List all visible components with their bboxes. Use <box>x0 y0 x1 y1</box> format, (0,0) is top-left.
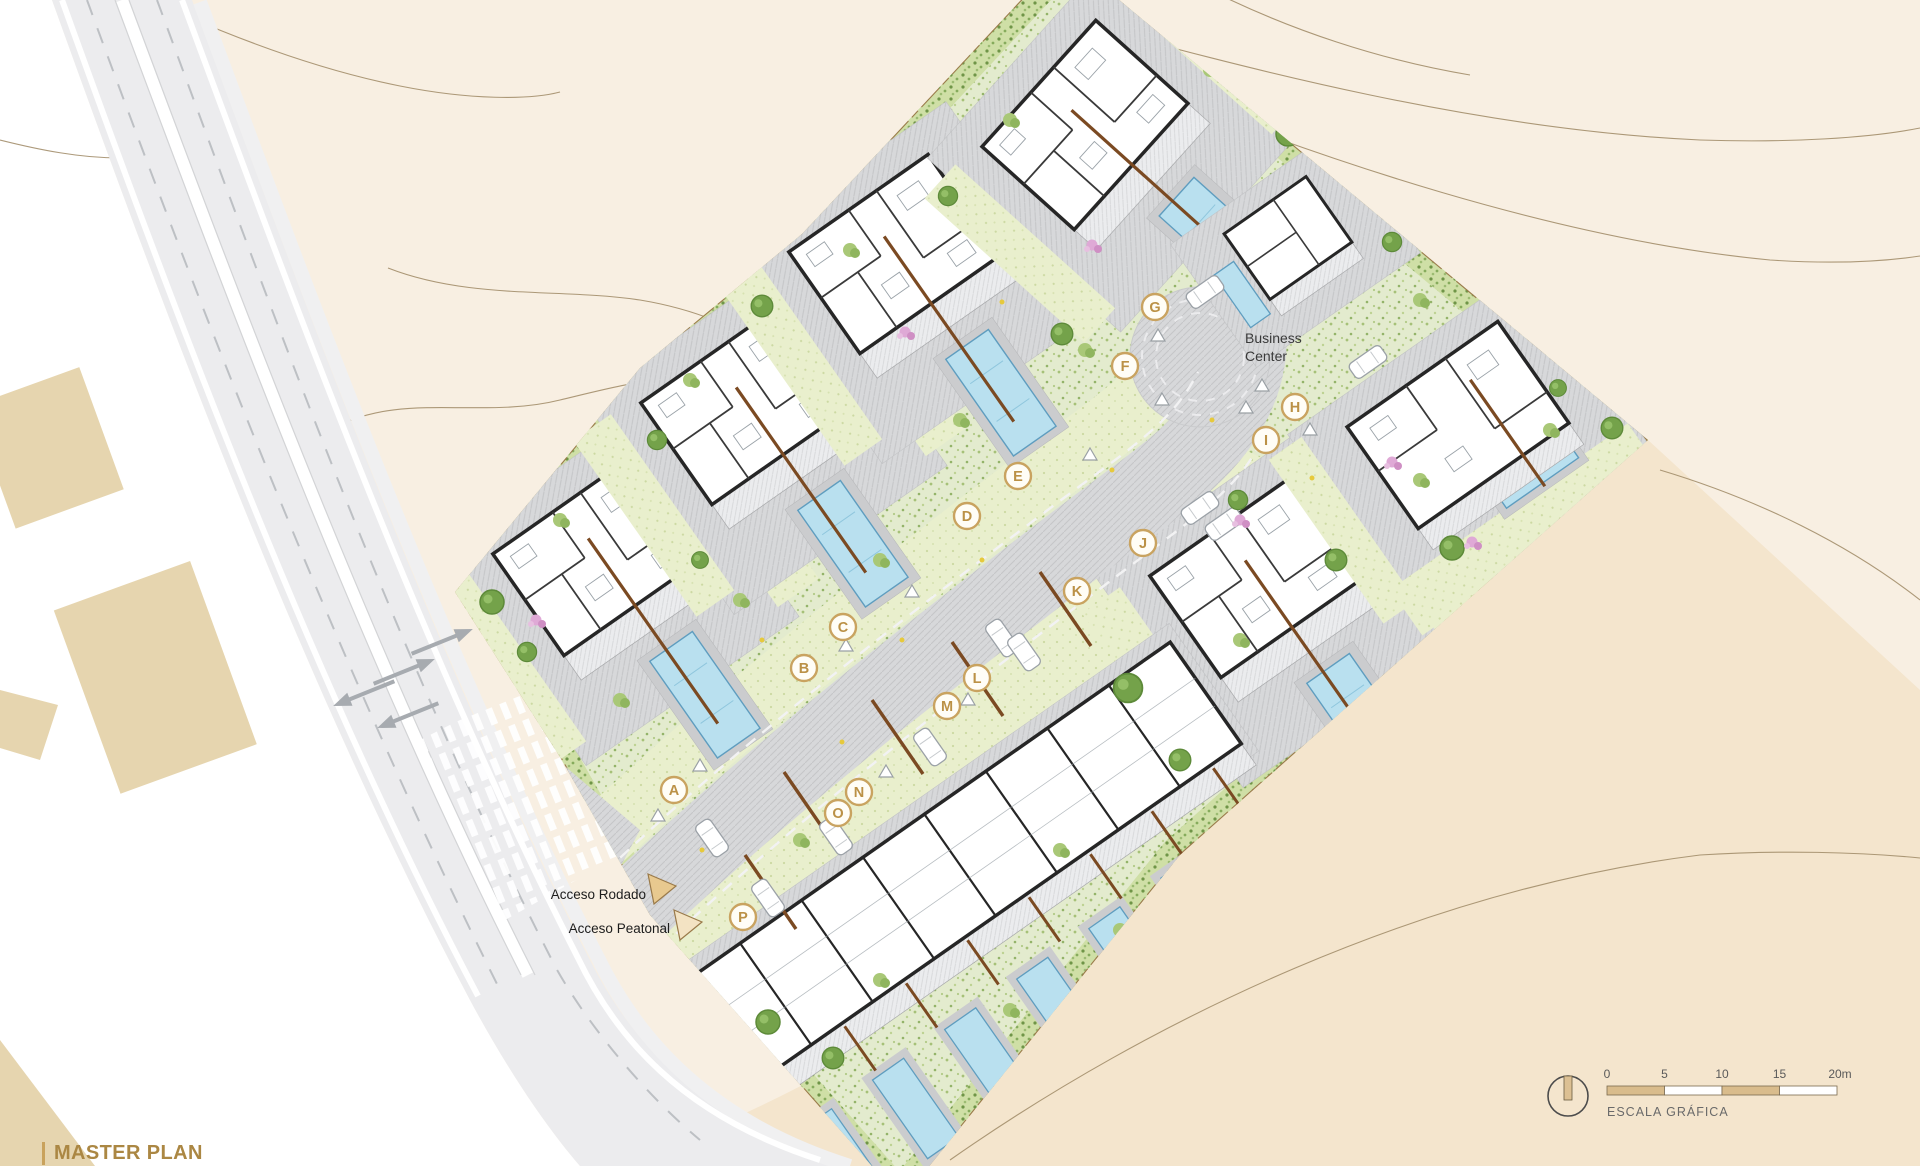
svg-text:G: G <box>1149 300 1160 316</box>
plot-marker-p: P <box>730 904 756 930</box>
svg-text:A: A <box>669 783 680 799</box>
svg-text:O: O <box>832 806 843 822</box>
svg-text:J: J <box>1139 536 1147 552</box>
svg-text:C: C <box>838 620 849 636</box>
plot-marker-k: K <box>1064 578 1090 604</box>
plot-marker-a: A <box>661 777 687 803</box>
svg-text:F: F <box>1121 359 1130 375</box>
plot-marker-e: E <box>1005 463 1031 489</box>
business-center-label-line2: Center <box>1245 348 1287 364</box>
plot-marker-g: G <box>1142 294 1168 320</box>
svg-text:B: B <box>799 661 809 677</box>
plot-marker-j: J <box>1130 530 1156 556</box>
plot-marker-b: B <box>791 655 817 681</box>
plot-marker-d: D <box>954 503 980 529</box>
plot-marker-o: O <box>825 800 851 826</box>
plot-marker-c: C <box>830 614 856 640</box>
masterplan-page: Acceso Rodado Acceso Peatonal Business C… <box>0 0 1920 1166</box>
access-pedestrian-label: Acceso Peatonal <box>569 921 670 936</box>
plot-marker-m: M <box>934 693 960 719</box>
access-road-label: Acceso Rodado <box>551 887 646 902</box>
plot-marker-f: F <box>1112 353 1138 379</box>
site-plan-drawing: Acceso Rodado Acceso Peatonal Business C… <box>0 0 1920 1166</box>
plot-marker-n: N <box>846 779 872 805</box>
scale-tick-5: 5 <box>1661 1067 1668 1081</box>
scale-tick-0: 0 <box>1604 1067 1611 1081</box>
svg-text:H: H <box>1290 400 1300 416</box>
scale-tick-15: 15 <box>1773 1067 1787 1081</box>
business-center-label-line1: Business <box>1245 330 1302 346</box>
svg-text:E: E <box>1013 469 1023 485</box>
svg-text:N: N <box>854 785 864 801</box>
svg-text:P: P <box>738 910 748 926</box>
plot-marker-h: H <box>1282 394 1308 420</box>
svg-text:I: I <box>1264 433 1268 449</box>
plot-marker-i: I <box>1253 427 1279 453</box>
svg-text:D: D <box>962 509 972 525</box>
svg-text:M: M <box>941 699 953 715</box>
scale-tick-10: 10 <box>1715 1067 1729 1081</box>
page-title: MASTER PLAN <box>42 1142 203 1165</box>
scale-tick-20m: 20m <box>1828 1067 1851 1081</box>
svg-text:K: K <box>1072 584 1083 600</box>
scale-caption: ESCALA GRÁFICA <box>1607 1104 1729 1119</box>
plot-marker-l: L <box>964 665 990 691</box>
svg-text:L: L <box>973 671 982 687</box>
